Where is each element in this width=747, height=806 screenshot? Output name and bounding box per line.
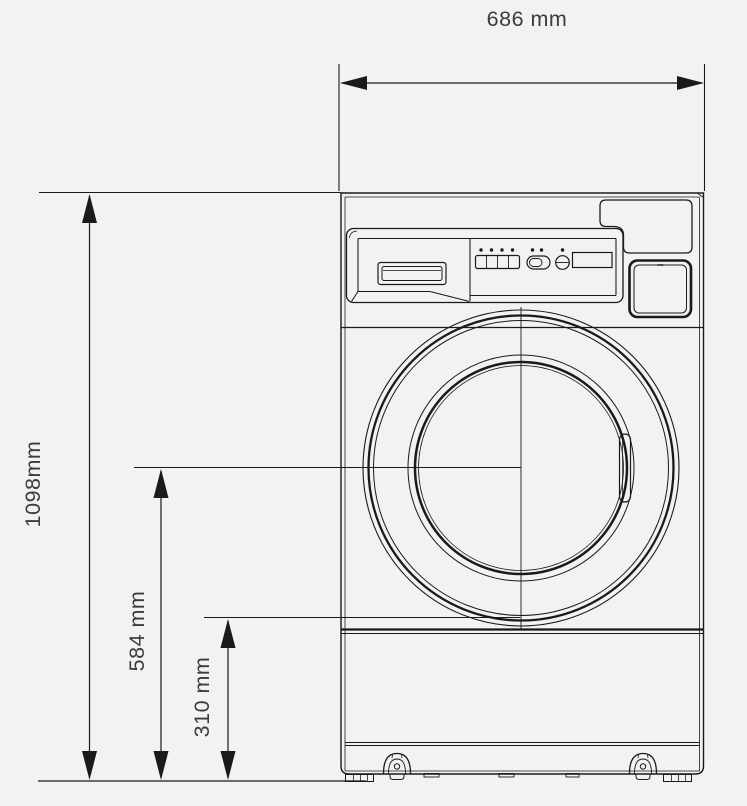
indicator-dot — [479, 248, 482, 251]
hinge-foot-left — [384, 754, 411, 780]
arrowhead-right — [677, 76, 704, 90]
arrowhead-down — [82, 751, 97, 780]
hinge-foot-right — [630, 754, 657, 780]
washing-machine — [341, 193, 704, 782]
door-center-height-dimension: 584 mm — [125, 468, 521, 781]
bezel-corner-fold — [350, 231, 358, 238]
toggle-outline — [527, 256, 550, 269]
foot-block — [664, 775, 692, 782]
drawer-bottom-bevel-right — [430, 292, 470, 302]
drawer-handle-inner — [382, 267, 442, 281]
hinge-hatch-2 — [402, 754, 403, 758]
indicator-dot — [561, 248, 564, 251]
arrowhead-left — [340, 76, 367, 90]
toggle-knob — [530, 259, 543, 267]
indicator-dot — [540, 248, 543, 251]
coin-slot-box — [630, 261, 692, 318]
overall-height-label: 1098mm — [21, 441, 45, 528]
indicator-dot — [500, 248, 503, 251]
arrowhead-up — [82, 194, 97, 223]
drawer-handle-outer — [378, 263, 446, 285]
overall-width-label: 686 mm — [487, 7, 568, 31]
hinge-hatch-1 — [392, 754, 393, 758]
control-panel — [347, 229, 624, 303]
drawer-bottom-bevel-left — [352, 292, 359, 302]
lower-height-dimension: 310 mm — [190, 618, 520, 781]
display-window — [573, 253, 613, 268]
arrowhead-up — [221, 619, 236, 648]
hinge-pin — [640, 764, 645, 769]
diagram-svg: 686 mm 1098mm 584 mm 310 mm — [0, 0, 747, 806]
door-center-height-label: 584 mm — [125, 591, 149, 672]
lower-reference-height-label: 310 mm — [190, 657, 214, 738]
hinge-hatch-2 — [648, 754, 649, 758]
base-details — [346, 754, 692, 782]
indicator-dot — [531, 248, 534, 251]
coin-slot-outer — [630, 261, 692, 318]
dimension-drawing: 686 mm 1098mm 584 mm 310 mm — [0, 0, 747, 806]
overall-width-dimension: 686 mm — [339, 7, 705, 191]
arrowhead-down — [154, 751, 169, 780]
indicator-dot — [490, 248, 493, 251]
selector-toggle — [527, 248, 550, 269]
rotary-knob — [556, 248, 570, 269]
overall-height-dimension: 1098mm — [21, 193, 341, 781]
arrowhead-up — [154, 469, 169, 498]
hinge-hatch-1 — [638, 754, 639, 758]
coin-vault — [600, 200, 692, 253]
program-button-strip — [476, 248, 520, 268]
hinge-pin — [394, 764, 399, 769]
coin-slot-inner — [634, 265, 687, 313]
corner-foot-right — [664, 775, 692, 782]
indicator-dot — [511, 248, 514, 251]
arrowhead-down — [221, 751, 236, 780]
detergent-drawer-handle — [378, 263, 446, 285]
